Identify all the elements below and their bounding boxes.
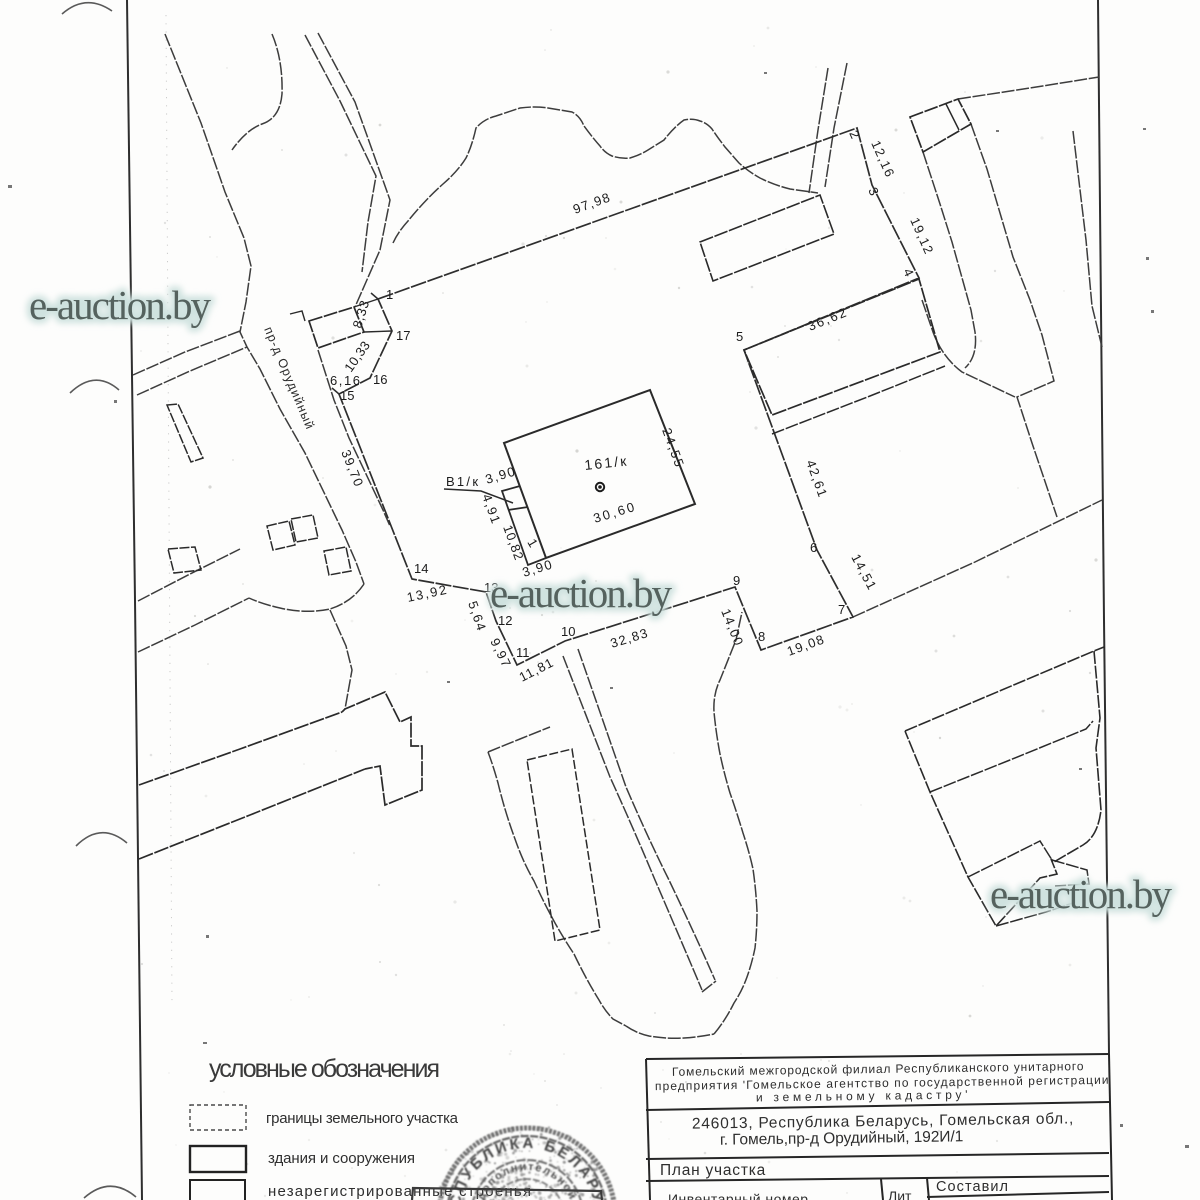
svg-text:здания и сооружения: здания и сооружения (268, 1150, 415, 1167)
svg-text:6,16: 6,16 (330, 373, 360, 388)
svg-text:8: 8 (758, 629, 765, 644)
svg-text:17: 17 (396, 328, 410, 343)
svg-text:В1/к: В1/к (446, 474, 478, 489)
svg-text:7: 7 (838, 602, 845, 617)
svg-text:г. Гомель,пр-д Орудийный, 192И: г. Гомель,пр-д Орудийный, 192И/1 (720, 1128, 964, 1148)
svg-text:и земельному кадастру': и земельному кадастру' (756, 1088, 968, 1105)
svg-text:11: 11 (516, 645, 530, 660)
svg-text:e-auction.by: e-auction.by (29, 282, 212, 328)
svg-text:9: 9 (733, 573, 740, 588)
svg-text:План участка: План участка (660, 1162, 766, 1179)
svg-text:15: 15 (340, 388, 354, 403)
svg-text:14: 14 (414, 561, 428, 576)
svg-text:e-auction.by: e-auction.by (490, 570, 673, 616)
svg-text:e-auction.by: e-auction.by (990, 871, 1173, 917)
svg-text:10: 10 (561, 624, 575, 639)
svg-text:1: 1 (386, 287, 393, 302)
svg-text:5: 5 (736, 329, 743, 344)
svg-text:6: 6 (810, 540, 817, 555)
svg-text:границы земельного участка: границы земельного участка (266, 1110, 459, 1127)
svg-text:Инвентарный номер: Инвентарный номер (668, 1191, 808, 1200)
svg-text:16: 16 (373, 372, 387, 387)
svg-text:условные обозначения: условные обозначения (209, 1055, 441, 1083)
svg-text:Составил: Составил (936, 1179, 1008, 1195)
svg-text:Лит: Лит (888, 1188, 912, 1200)
